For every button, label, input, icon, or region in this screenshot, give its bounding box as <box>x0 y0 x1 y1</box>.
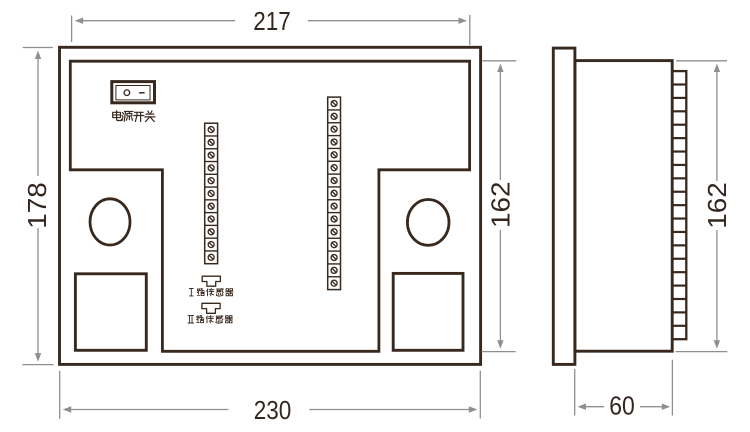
svg-text:217: 217 <box>253 6 291 36</box>
svg-text:230: 230 <box>254 395 292 425</box>
svg-text:178: 178 <box>22 182 52 229</box>
svg-text:162: 162 <box>486 181 516 228</box>
svg-text:162: 162 <box>702 182 732 229</box>
svg-text:60: 60 <box>609 391 635 421</box>
